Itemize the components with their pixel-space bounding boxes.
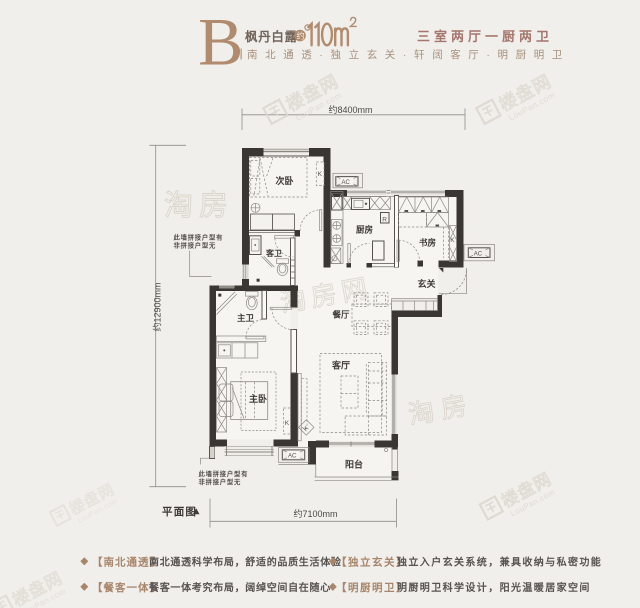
svg-text:R: R [382,216,387,223]
svg-text:南北通透·独立玄关·轩阔客厅·明厨明卫: 南北通透·独立玄关·轩阔客厅·明厨明卫 [247,48,570,61]
svg-text:K: K [285,420,290,427]
svg-text:客卫: 客卫 [265,248,282,258]
svg-text:约7100mm: 约7100mm [294,508,338,519]
svg-text:阳台: 阳台 [345,459,363,470]
svg-text:厨房: 厨房 [356,224,373,234]
svg-text:约: 约 [297,31,305,41]
svg-text:枫丹白露: 枫丹白露 [245,29,298,44]
svg-text:南北通透科学布局，舒适的品质生活体验: 南北通透科学布局，舒适的品质生活体验 [149,556,342,569]
svg-text:此墙拼接户型有: 此墙拼接户型有 [174,233,224,242]
svg-text:独立入户玄关系统，兼具收纳与私密功能: 独立入户玄关系统，兼具收纳与私密功能 [397,556,602,569]
svg-text:约8400mm: 约8400mm [329,104,373,115]
svg-text:次卧: 次卧 [276,175,294,186]
svg-text:明厨明卫科学设计，阳光温暖居家空间: 明厨明卫科学设计，阳光温暖居家空间 [397,581,591,594]
svg-text:此墙拼接户型有: 此墙拼接户型有 [199,469,249,478]
svg-text:B: B [198,4,243,80]
svg-text:餐客一体考究布局，阔绰空间自在随心: 餐客一体考究布局，阔绰空间自在随心 [148,581,331,594]
svg-text:客厅: 客厅 [331,359,350,370]
svg-text:淘房: 淘房 [164,189,234,222]
svg-text:餐厅: 餐厅 [332,310,351,320]
svg-text:平面图: 平面图 [162,506,197,518]
svg-text:三室两厅一厨两卫: 三室两厅一厨两卫 [417,29,553,44]
svg-text:非拼接户型无: 非拼接户型无 [199,477,242,486]
svg-text:AC: AC [342,180,351,186]
svg-text:AC: AC [288,454,297,460]
svg-text:玄关: 玄关 [418,278,436,289]
svg-text:K: K [450,237,455,244]
svg-text:K: K [318,171,323,178]
svg-text:主卧: 主卧 [249,393,267,404]
svg-text:非拼接户型无: 非拼接户型无 [174,240,217,249]
svg-text:约12900mm: 约12900mm [152,282,163,331]
svg-text:主卫: 主卫 [237,313,255,323]
svg-text:书房: 书房 [419,237,436,247]
svg-text:AC: AC [474,251,483,257]
